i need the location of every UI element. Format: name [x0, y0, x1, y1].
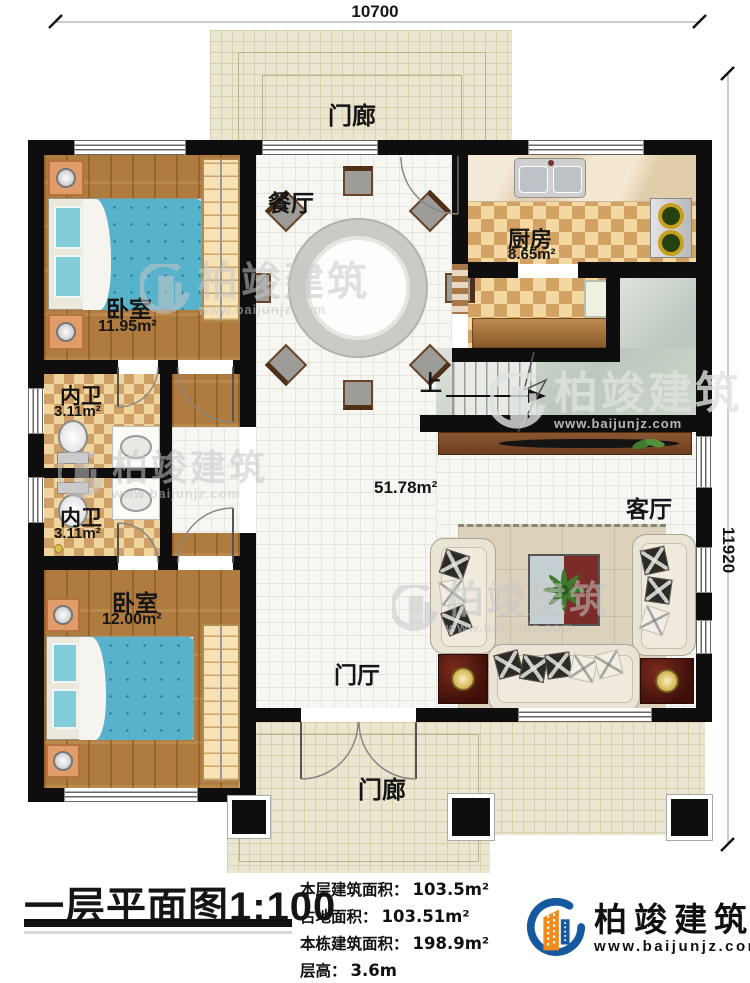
wall-bottom [416, 708, 518, 722]
stat-label: 占地面积： [300, 905, 378, 927]
dining-table [288, 218, 428, 358]
hall-area: 51.78m² [374, 478, 437, 498]
wash-basin [120, 435, 152, 459]
wall-tv [420, 415, 712, 432]
wall-bath-divider [44, 468, 160, 478]
title-underline-light [24, 931, 292, 934]
side-table-left [438, 654, 488, 704]
wall-spine [240, 533, 256, 802]
logo-name: 柏竣建筑 [594, 903, 750, 938]
bed-pillow [54, 206, 82, 249]
wardrobe [202, 158, 240, 322]
hall-nook-floor [172, 427, 240, 533]
wash-basin [120, 488, 152, 512]
porch-bottom-label: 门廊 [322, 770, 442, 805]
porch-top-label: 门廊 [300, 96, 404, 131]
wall-pantry-right [606, 278, 620, 350]
wall-bath-right [160, 374, 172, 556]
bedroom1-entry-floor [172, 374, 240, 427]
column [671, 799, 708, 836]
stat-row: 层高： 3.6m [300, 959, 550, 981]
bedroom1-area: 11.95m² [98, 318, 157, 336]
floor-drain [54, 544, 63, 553]
kitchen-sink [514, 158, 586, 198]
bedroom2-entry-floor [172, 533, 240, 556]
logo-url: www.baijunjz.com [594, 938, 750, 955]
title-underline [24, 919, 292, 927]
pantry-cabinet [472, 318, 612, 348]
bed-pillow [52, 643, 78, 683]
window [528, 140, 644, 155]
nightstand [46, 598, 80, 632]
floor-lamp-icon [655, 669, 679, 693]
tv-cabinet [438, 432, 692, 455]
stat-label: 本栋建筑面积： [300, 932, 409, 954]
window [262, 140, 378, 155]
wall-bedroom2-top [158, 556, 178, 570]
bath2-area: 3.11m² [54, 525, 101, 542]
wall-kitchen-bottom [578, 262, 712, 278]
stat-value: 103.5m² [413, 880, 490, 899]
nightstand [48, 314, 84, 350]
dining-label: 餐厅 [268, 184, 314, 218]
kitchen-stove [650, 198, 692, 258]
wall-kitchen-left [452, 154, 468, 264]
sofa-pillow [640, 546, 670, 576]
bed-pillow [54, 255, 82, 298]
floor-plan-canvas: 10700 11920 门廊 门廊 上 [0, 0, 750, 983]
sink-faucet [548, 160, 554, 166]
window [696, 436, 712, 488]
stairs-up-label: 上 [420, 366, 442, 398]
stat-row: 本栋建筑面积： 198.9m² [300, 932, 550, 954]
kitchen-threshold [452, 264, 468, 314]
window [518, 708, 652, 722]
sofa-pillow [519, 654, 548, 683]
table-lamp-icon [56, 168, 76, 188]
window [28, 388, 44, 434]
dining-chair [343, 380, 373, 410]
sink-basin-right [553, 166, 582, 193]
wall-spine [240, 154, 256, 374]
dining-chair [343, 166, 373, 196]
vanity-counter [112, 478, 160, 520]
bed-2 [46, 636, 194, 740]
sofa-pillow [644, 576, 672, 604]
floor-lamp-icon [451, 667, 475, 691]
stat-value: 198.9m² [413, 934, 490, 953]
table-lamp-icon [56, 322, 76, 342]
toilet-bowl [58, 420, 88, 454]
wall-left [28, 140, 44, 802]
window [74, 140, 186, 155]
wardrobe [202, 624, 240, 782]
bedroom2-area: 12.00m² [102, 611, 162, 629]
nightstand [46, 744, 80, 778]
bed-pillow [52, 689, 78, 729]
stove-burner-2 [658, 230, 684, 256]
stat-label: 层高： [300, 959, 347, 981]
wall-bedroom2-top [28, 556, 118, 570]
nightstand [48, 160, 84, 196]
potted-plant-icon [540, 566, 588, 614]
wall-bedroom1-bottom [28, 360, 118, 374]
column [232, 800, 266, 834]
wall-bedroom2-top [233, 556, 244, 570]
table-lamp-icon [53, 605, 73, 625]
vanity-counter [112, 426, 160, 468]
wall-bottom [652, 708, 712, 722]
stats-block: 本层建筑面积： 103.5m² 占地面积： 103.51m² 本栋建筑面积： 1… [300, 878, 550, 983]
coffee-table [528, 554, 600, 626]
kitchen-area: 8.65m² [508, 246, 556, 263]
dining-table-top [306, 236, 410, 340]
foyer-label: 门厅 [334, 656, 380, 690]
toilet-tank [57, 482, 89, 494]
stairs [452, 362, 536, 418]
wall-bedroom1-bottom [233, 360, 244, 374]
sofa-pillow [438, 578, 466, 606]
stat-label: 本层建筑面积： [300, 878, 409, 900]
stat-value: 103.51m² [382, 907, 470, 926]
company-logo: 柏竣建筑 www.baijunjz.com [524, 898, 750, 960]
dimension-right: 11920 [718, 510, 738, 590]
wall-bedroom1-bottom [158, 360, 178, 374]
window [64, 788, 198, 802]
wall-pantry-bottom [452, 348, 620, 362]
toilet-tank [57, 452, 89, 464]
window [28, 477, 44, 523]
window [696, 547, 712, 593]
dimension-top: 10700 [338, 2, 412, 22]
cabinet-plant [629, 434, 669, 452]
stove-burner-1 [658, 203, 684, 229]
wall-spine [240, 374, 256, 427]
baijun-logo-icon [524, 898, 586, 960]
stat-row: 本层建筑面积： 103.5m² [300, 878, 550, 900]
living-label: 客厅 [626, 490, 672, 524]
stat-value: 3.6m [351, 961, 397, 980]
side-table-right [640, 658, 694, 704]
sink-basin-left [519, 166, 548, 193]
column [452, 798, 490, 836]
stat-row: 占地面积： 103.51m² [300, 905, 550, 927]
window [696, 620, 712, 654]
bath1-area: 3.11m² [54, 403, 101, 420]
table-lamp-icon [53, 751, 73, 771]
